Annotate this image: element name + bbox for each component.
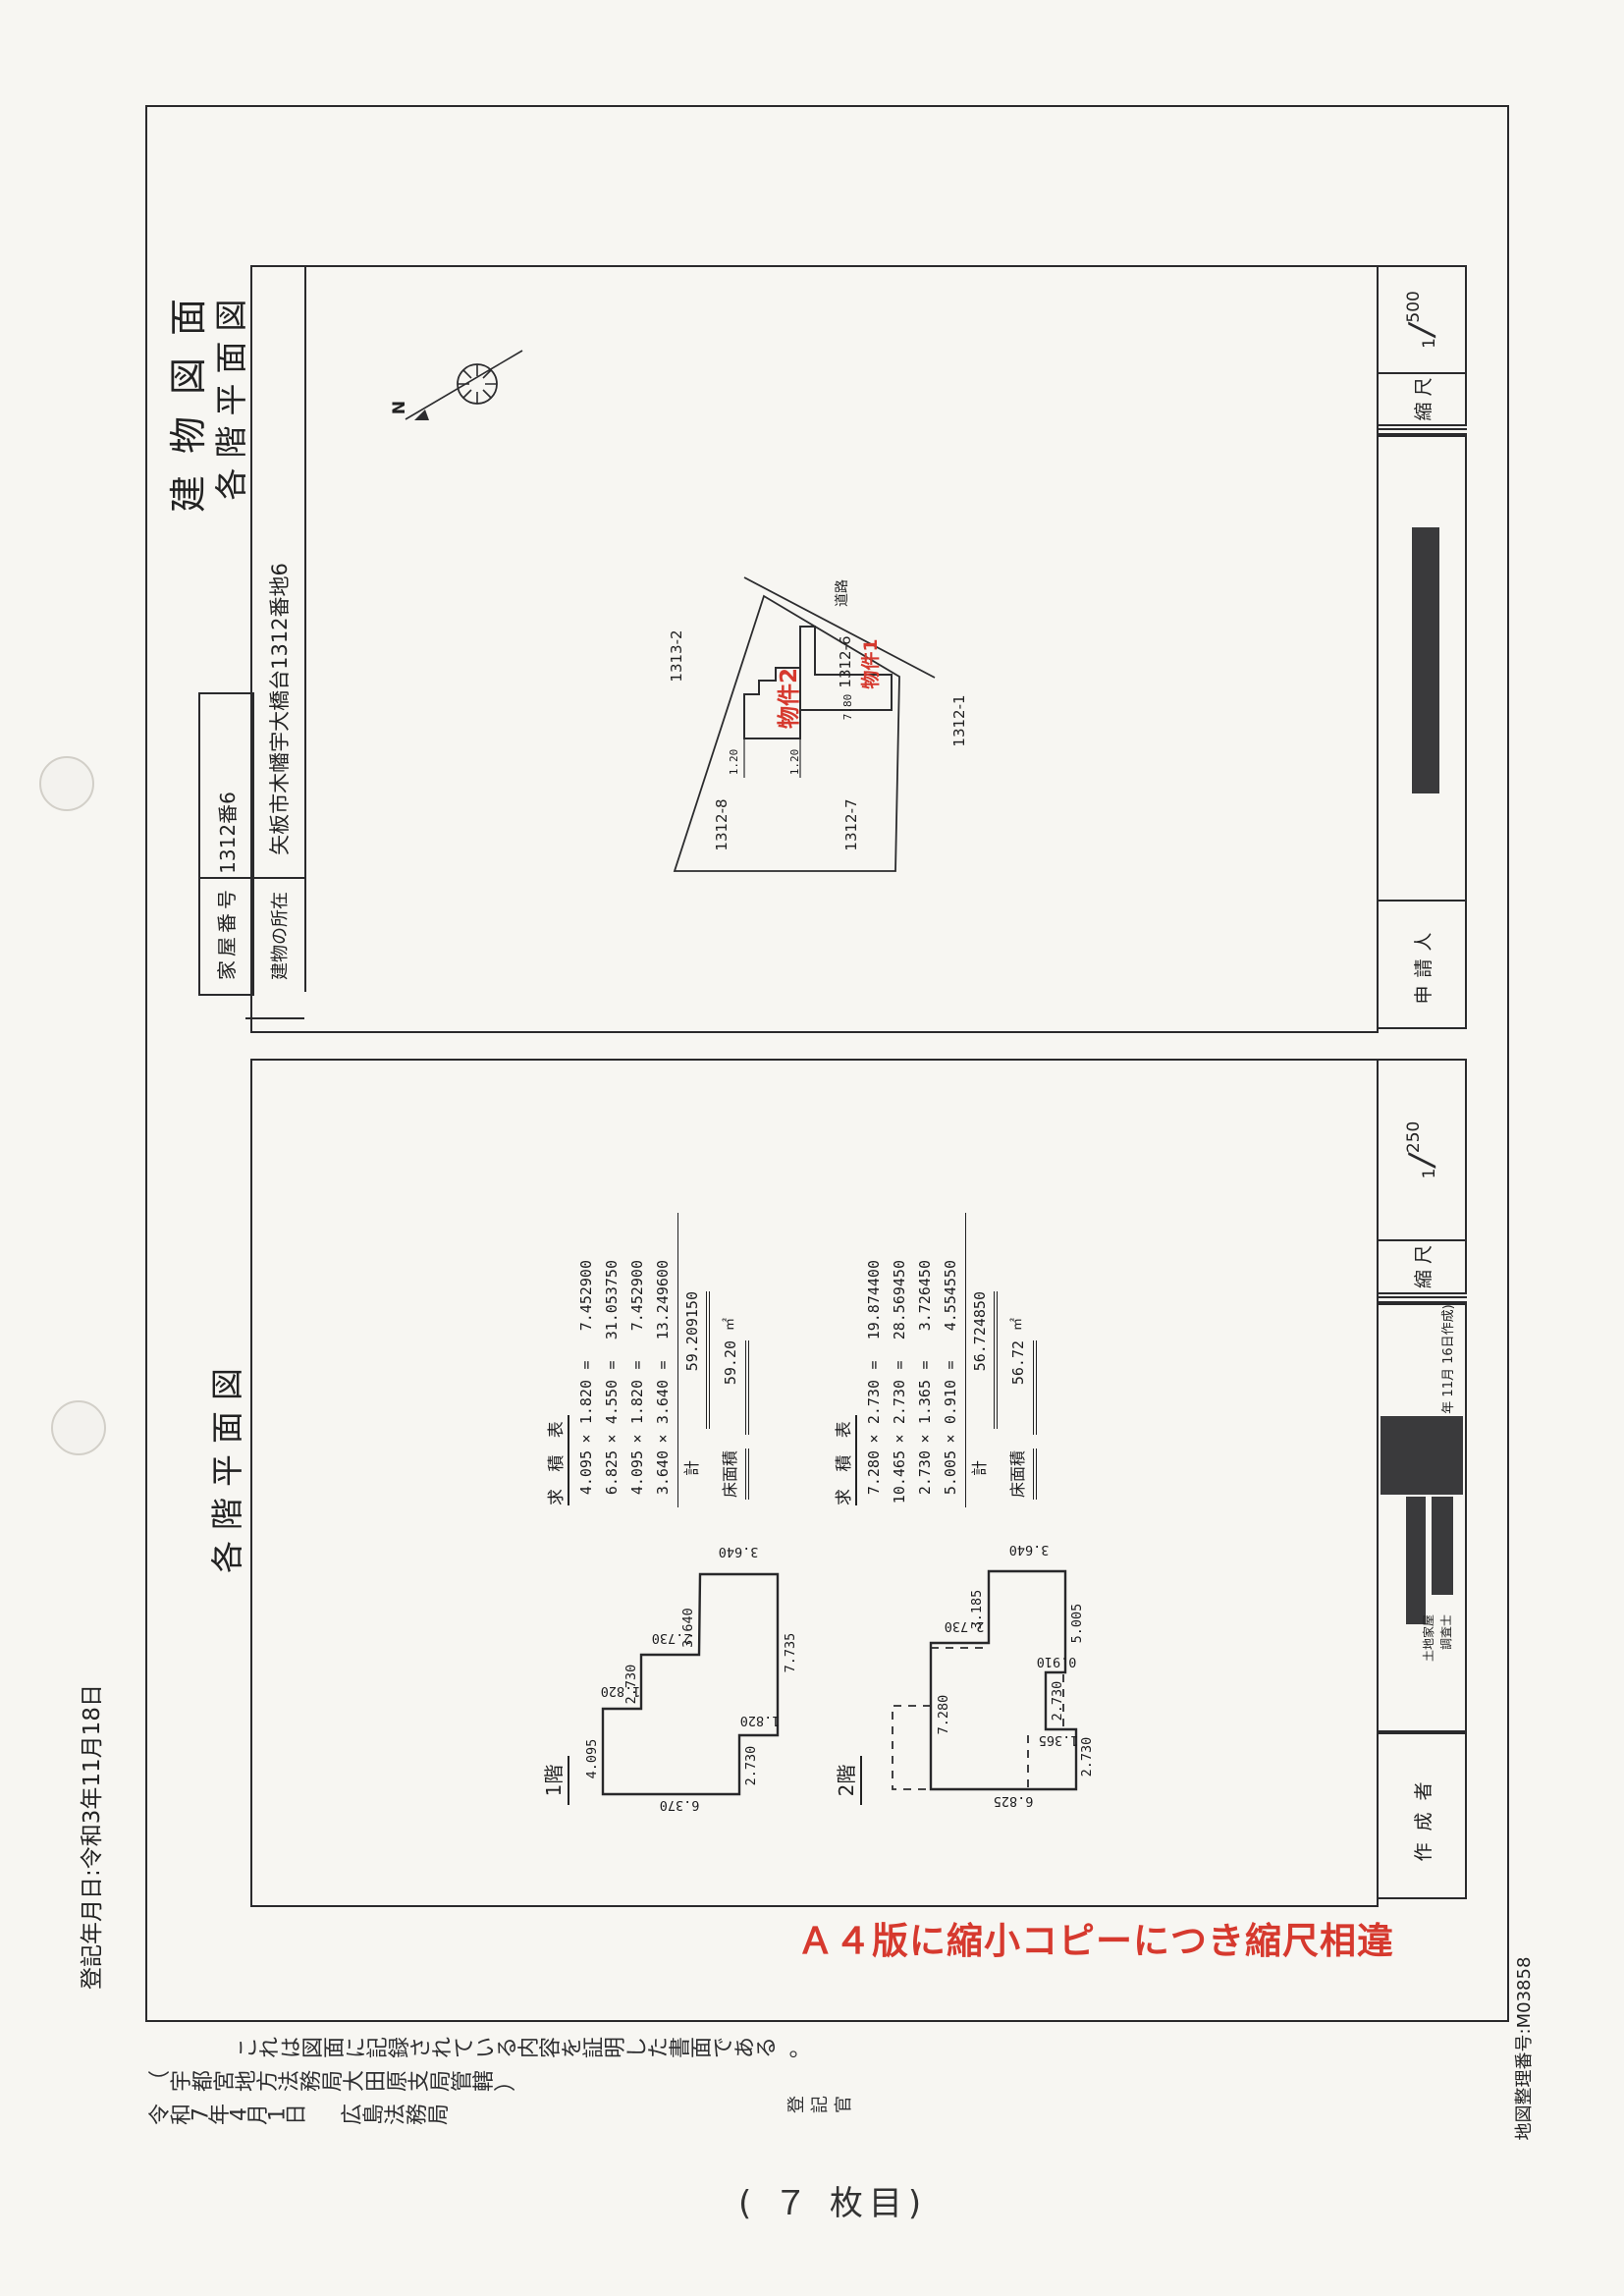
- applicant-name-redaction: [1412, 527, 1439, 793]
- dimension-label: 7.735: [782, 1622, 799, 1683]
- table-row: 7.280×2.730=19.874400: [861, 1174, 887, 1507]
- dimension-label: 6.370: [648, 1797, 711, 1813]
- area-table-title: 求 積 表: [542, 1415, 569, 1505]
- creation-date-note: 年 11月 16日作成): [1434, 1306, 1459, 1412]
- applicant-label-cell: 申請人: [1377, 900, 1467, 1029]
- area-table-floor1: 求 積 表 4.095×1.820=7.452900 6.825×4.550=3…: [542, 1174, 743, 1507]
- dimension-label: 2.730: [933, 1618, 996, 1634]
- road-label: 道路: [831, 573, 852, 614]
- floor-section-title: 各階平面図: [202, 1353, 247, 1577]
- lot-label: 1312-8: [711, 793, 732, 856]
- scale-label-cell: 縮 尺: [1377, 1239, 1467, 1294]
- registrar-label: 登記官: [785, 2090, 856, 2119]
- jurisdiction-text: （宇都宮地方法務局大田原支局管轄）: [150, 2066, 517, 2096]
- dimension-label: 2.730: [1078, 1728, 1096, 1785]
- area-table-floor2: 求 積 表 7.280×2.730=19.874400 10.465×2.730…: [830, 1174, 1031, 1507]
- building-2-label: 物件2: [772, 664, 801, 733]
- creator-name-redaction: [1406, 1497, 1426, 1624]
- floor2-label: 2階: [829, 1756, 860, 1805]
- scale-label-cell: 縮 尺: [1377, 372, 1467, 426]
- lot-label: 1312-7: [840, 793, 862, 856]
- building-1-label: 物件1: [856, 634, 882, 693]
- certification-date: 令和7年4月1日: [150, 2100, 308, 2129]
- creator-label-cell: 作成者: [1377, 1732, 1467, 1899]
- map-reference-number: 地図整理番号:M03858: [1508, 1950, 1538, 2147]
- lot-label: 1312-1: [948, 689, 970, 752]
- scale-value-cell-250: 1∕250: [1377, 1059, 1467, 1241]
- legal-affairs-bureau: 広島法務局: [343, 2100, 451, 2129]
- dimension-label: 1.820: [729, 1713, 791, 1728]
- table-row: 2.730×1.365=3.726450: [912, 1174, 938, 1507]
- table-row: 4.095×1.820=7.452900: [573, 1174, 599, 1507]
- double-rule: [1377, 428, 1467, 435]
- floor-area-row: 床面積56.72㎡: [1003, 1174, 1037, 1507]
- scale-value-cell-500: 1∕500: [1377, 265, 1467, 374]
- dimension-label: 3.640: [679, 1601, 697, 1655]
- dimension-label: 4.095: [583, 1730, 601, 1787]
- surveyor-title-line2: 調査士: [1437, 1607, 1453, 1658]
- dimension-label: 6.825: [982, 1793, 1045, 1809]
- dimension-label: 3.640: [998, 1542, 1060, 1558]
- table-row: 10.465×2.730=28.569450: [887, 1174, 912, 1507]
- creator-stamp-redaction: [1380, 1416, 1463, 1495]
- dimension-label: 5.005: [1068, 1593, 1086, 1654]
- north-label: N: [389, 395, 410, 420]
- dimension-label: 2.730: [1049, 1675, 1066, 1726]
- north-arrowhead: [414, 410, 429, 420]
- double-rule: [1377, 1296, 1467, 1303]
- table-row: 4.095×1.820=7.452900: [624, 1174, 650, 1507]
- dimension-label: 2.730: [742, 1740, 760, 1791]
- certification-text: これは図面に記録されている内容を証明した書面である。: [239, 2033, 800, 2062]
- lot-label: 1312-6: [835, 630, 856, 693]
- site-dimension: 7.80: [840, 685, 855, 729]
- floor1-label: 1階: [536, 1756, 568, 1805]
- floor2-dashed-ghost: [893, 1706, 931, 1789]
- site-dimension: 1.20: [727, 740, 741, 784]
- site-dimension: 1.20: [787, 740, 802, 784]
- compass-spokes: [458, 364, 497, 404]
- dimension-label: 7.280: [935, 1685, 952, 1744]
- creator-name-redaction: [1432, 1497, 1453, 1595]
- lot-label: 1313-2: [666, 625, 687, 687]
- table-row: 6.825×4.550=31.053750: [599, 1174, 624, 1507]
- dimension-label: 0.910: [1025, 1654, 1088, 1669]
- dimension-label: 2.730: [623, 1660, 640, 1709]
- table-row: 5.005×0.910=4.554550: [938, 1174, 963, 1507]
- table-total-row: 計59.209150: [677, 1213, 710, 1507]
- dimension-label: 1.820: [589, 1683, 652, 1699]
- dimension-label: 3.640: [707, 1544, 770, 1559]
- scale-mismatch-stamp: Ａ４版に縮小コピーにつき縮尺相違: [797, 1911, 1394, 1964]
- area-table-title: 求 積 表: [830, 1415, 857, 1505]
- table-row: 3.640×3.640=13.249600: [650, 1174, 676, 1507]
- scanned-document-page: 登記年月日:令和3年11月18日 建物図面 各階平面図 家屋番号 1312番6 …: [0, 0, 1624, 2296]
- north-line: [406, 351, 522, 419]
- surveyor-title-line1: 土地家屋: [1420, 1607, 1435, 1669]
- table-total-row: 計56.724850: [965, 1213, 998, 1507]
- sheet-page-number: ( ７ 枚目): [738, 2176, 927, 2224]
- floor-area-row: 床面積59.20㎡: [716, 1174, 749, 1507]
